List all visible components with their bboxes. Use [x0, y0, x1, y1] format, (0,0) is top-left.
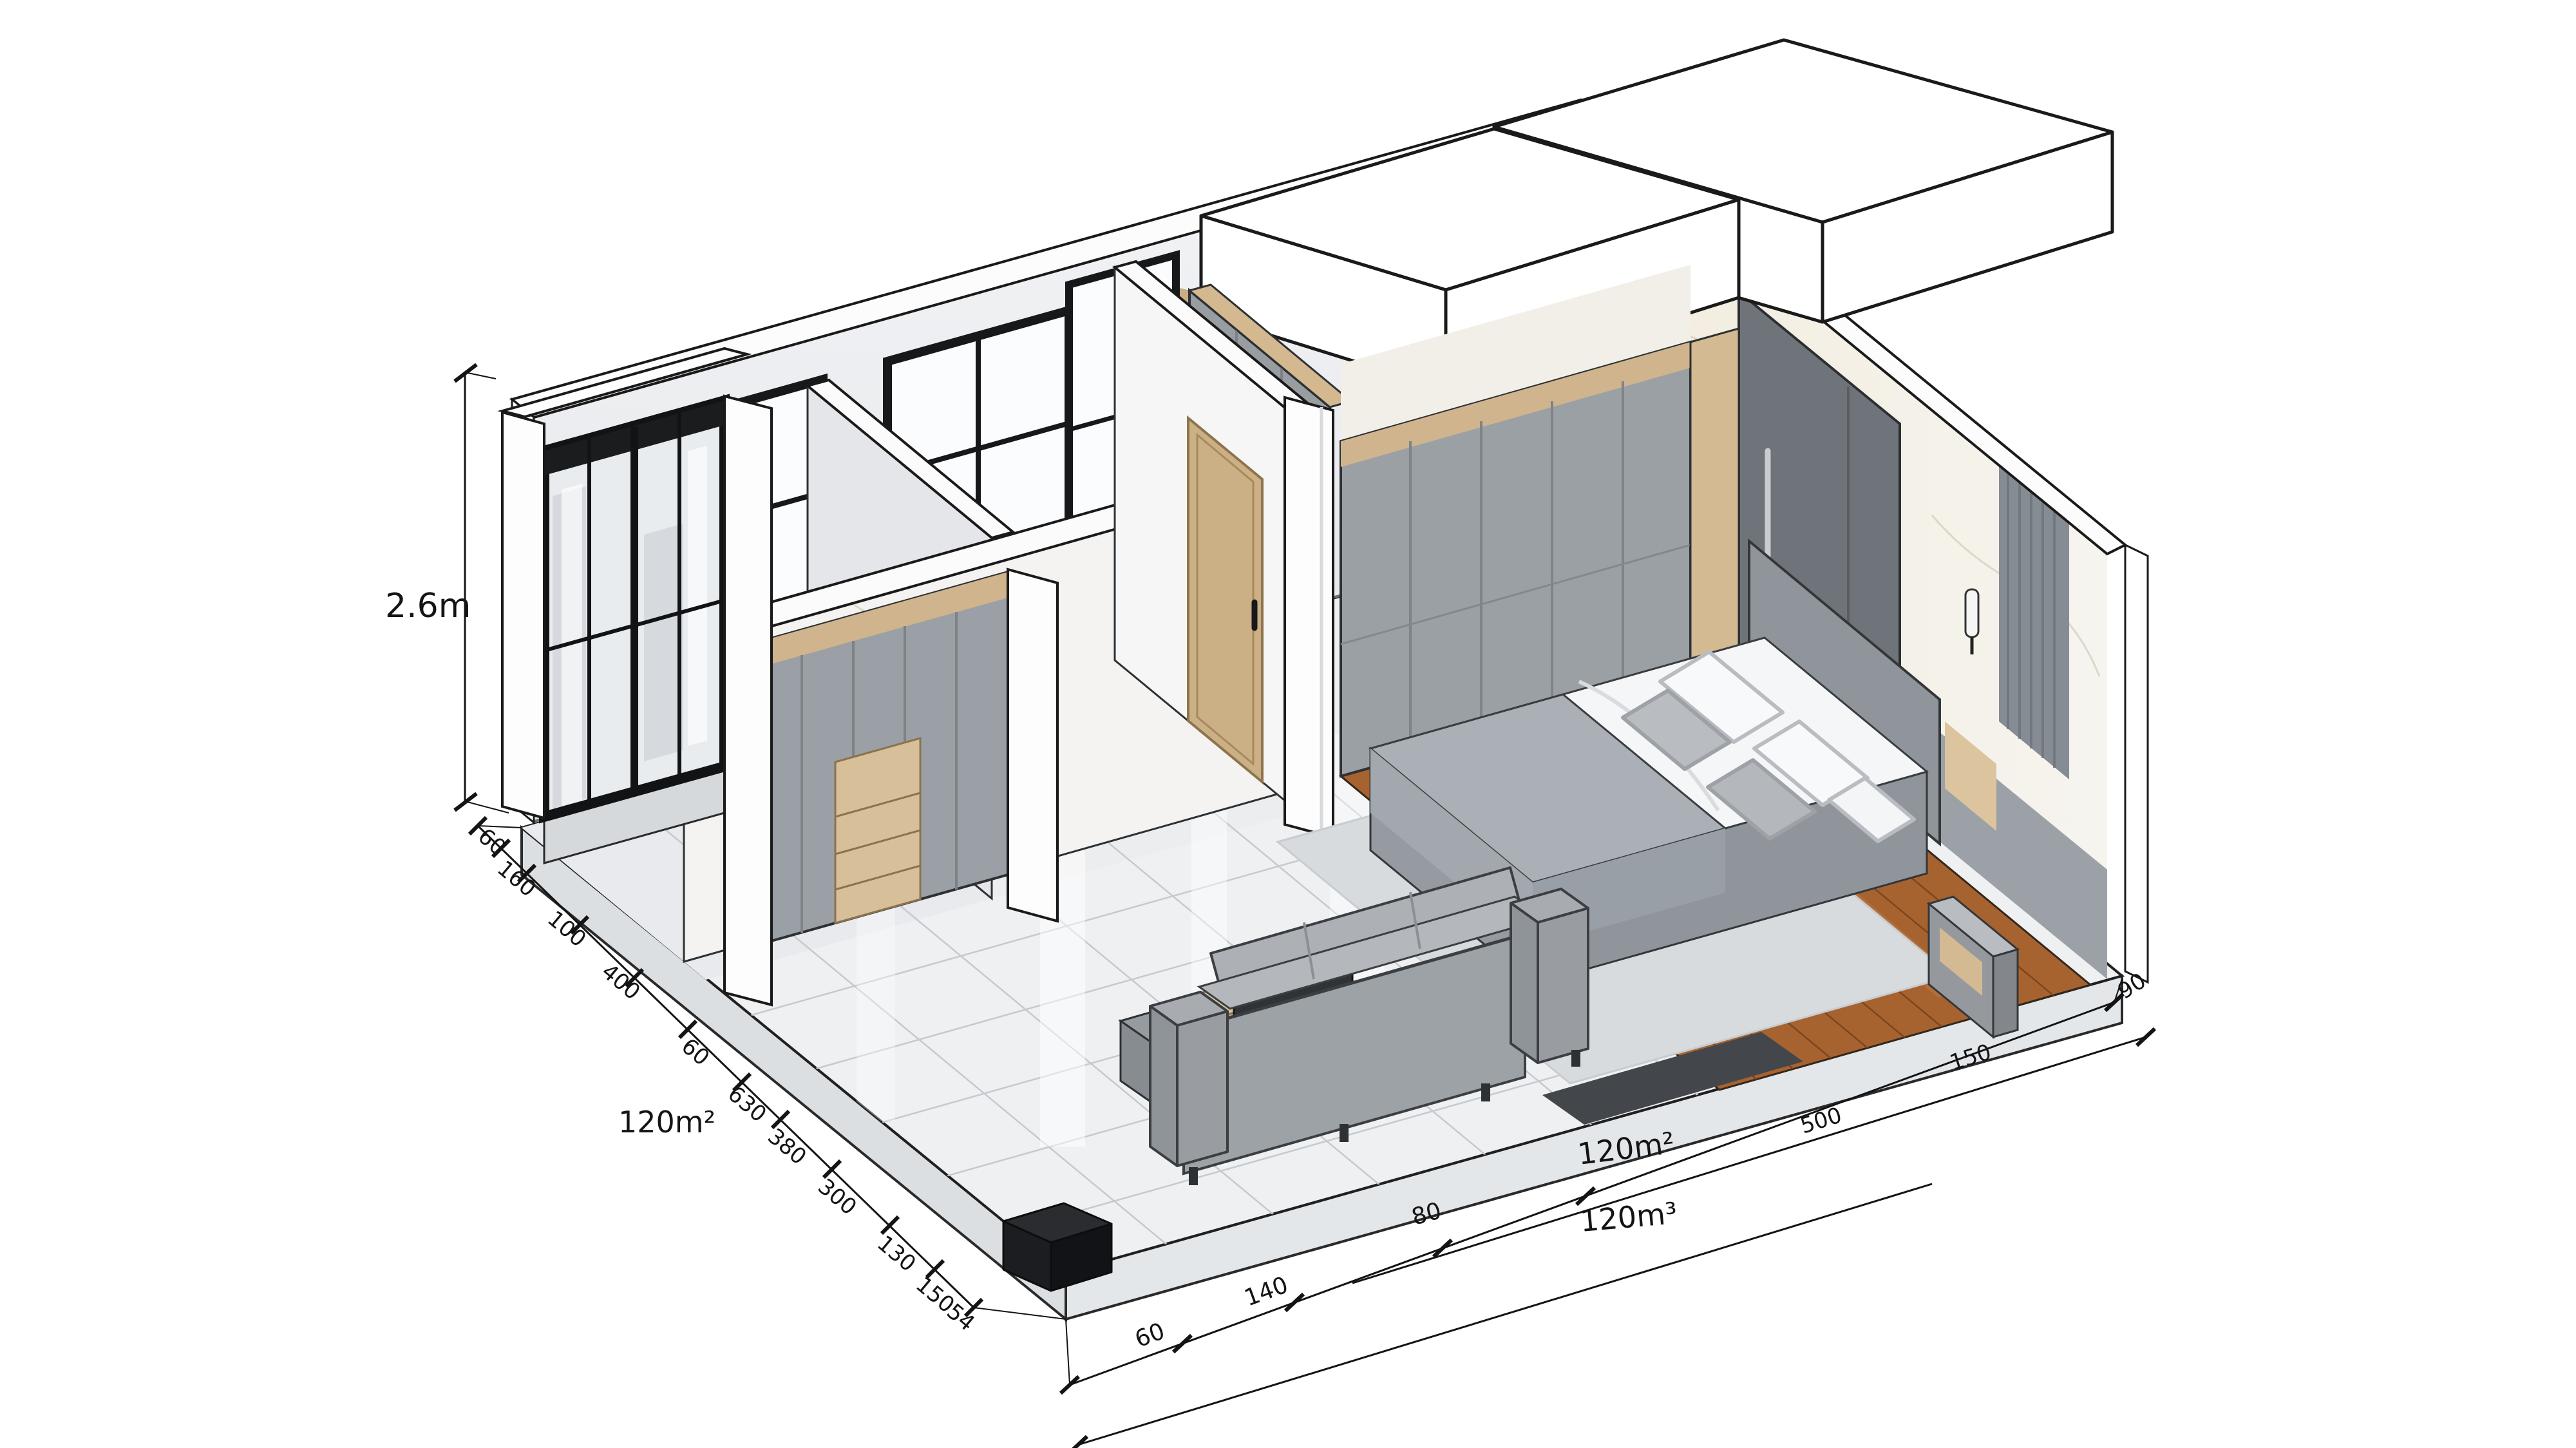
volume-label: 120m³ [1578, 1196, 1678, 1239]
bedroom-wardrobe-tan-column [1690, 329, 1739, 677]
isometric-floorplan-scene: 2.6m 120m² 120m² 120m³ 60 160 100 400 60… [0, 0, 2576, 1448]
svg-text:630: 630 [723, 1081, 771, 1127]
tall-white-column [1285, 397, 1333, 837]
svg-text:300: 300 [813, 1174, 861, 1220]
hall-door [1188, 418, 1262, 782]
svg-text:130: 130 [872, 1230, 920, 1277]
svg-text:60: 60 [1132, 1318, 1168, 1353]
svg-text:60: 60 [676, 1033, 714, 1071]
sofa-armrest-left [1150, 992, 1227, 1166]
sofa-armrest-right [1511, 889, 1588, 1063]
glass-sliding-door [544, 401, 724, 817]
area-label-left: 120m² [618, 1105, 715, 1139]
right-wall-outer-edge [2125, 545, 2148, 982]
bay-right-column [724, 396, 772, 1005]
height-label: 2.6m [385, 587, 471, 625]
svg-text:60: 60 [473, 823, 511, 861]
svg-text:380: 380 [762, 1123, 811, 1170]
closet-right-column [1008, 569, 1057, 921]
black-plinth-cube [1003, 1203, 1112, 1291]
bay-left-column [502, 412, 544, 818]
closet-open-shelf [835, 738, 920, 923]
